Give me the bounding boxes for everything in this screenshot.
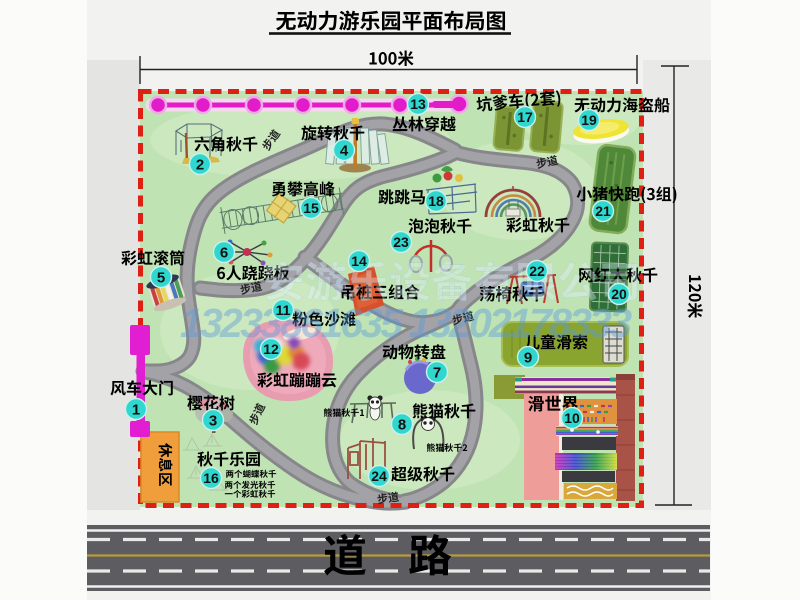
svg-text:7: 7 xyxy=(433,364,441,381)
svg-text:22: 22 xyxy=(529,263,545,279)
svg-text:16: 16 xyxy=(203,470,219,486)
svg-text:2: 2 xyxy=(196,156,204,173)
svg-text:21: 21 xyxy=(595,203,611,219)
svg-text:18: 18 xyxy=(428,193,444,209)
svg-text:19: 19 xyxy=(581,112,597,128)
svg-text:4: 4 xyxy=(340,142,349,159)
svg-text:9: 9 xyxy=(524,349,532,366)
svg-text:13: 13 xyxy=(410,96,426,112)
svg-text:24: 24 xyxy=(371,468,387,484)
svg-text:8: 8 xyxy=(398,416,406,433)
svg-text:5: 5 xyxy=(157,269,165,286)
svg-text:13233861635 13202178333: 13233861635 13202178333 xyxy=(180,300,632,346)
svg-text:23: 23 xyxy=(393,234,409,250)
svg-text:20: 20 xyxy=(611,286,627,302)
svg-text:11: 11 xyxy=(276,302,291,318)
svg-text:3: 3 xyxy=(209,412,217,429)
svg-text:14: 14 xyxy=(351,253,367,269)
svg-text:17: 17 xyxy=(517,109,533,125)
svg-text:15: 15 xyxy=(303,200,319,216)
svg-text:6: 6 xyxy=(220,244,228,261)
svg-text:12: 12 xyxy=(263,341,279,357)
svg-text:10: 10 xyxy=(564,410,580,426)
svg-text:1: 1 xyxy=(132,401,140,418)
